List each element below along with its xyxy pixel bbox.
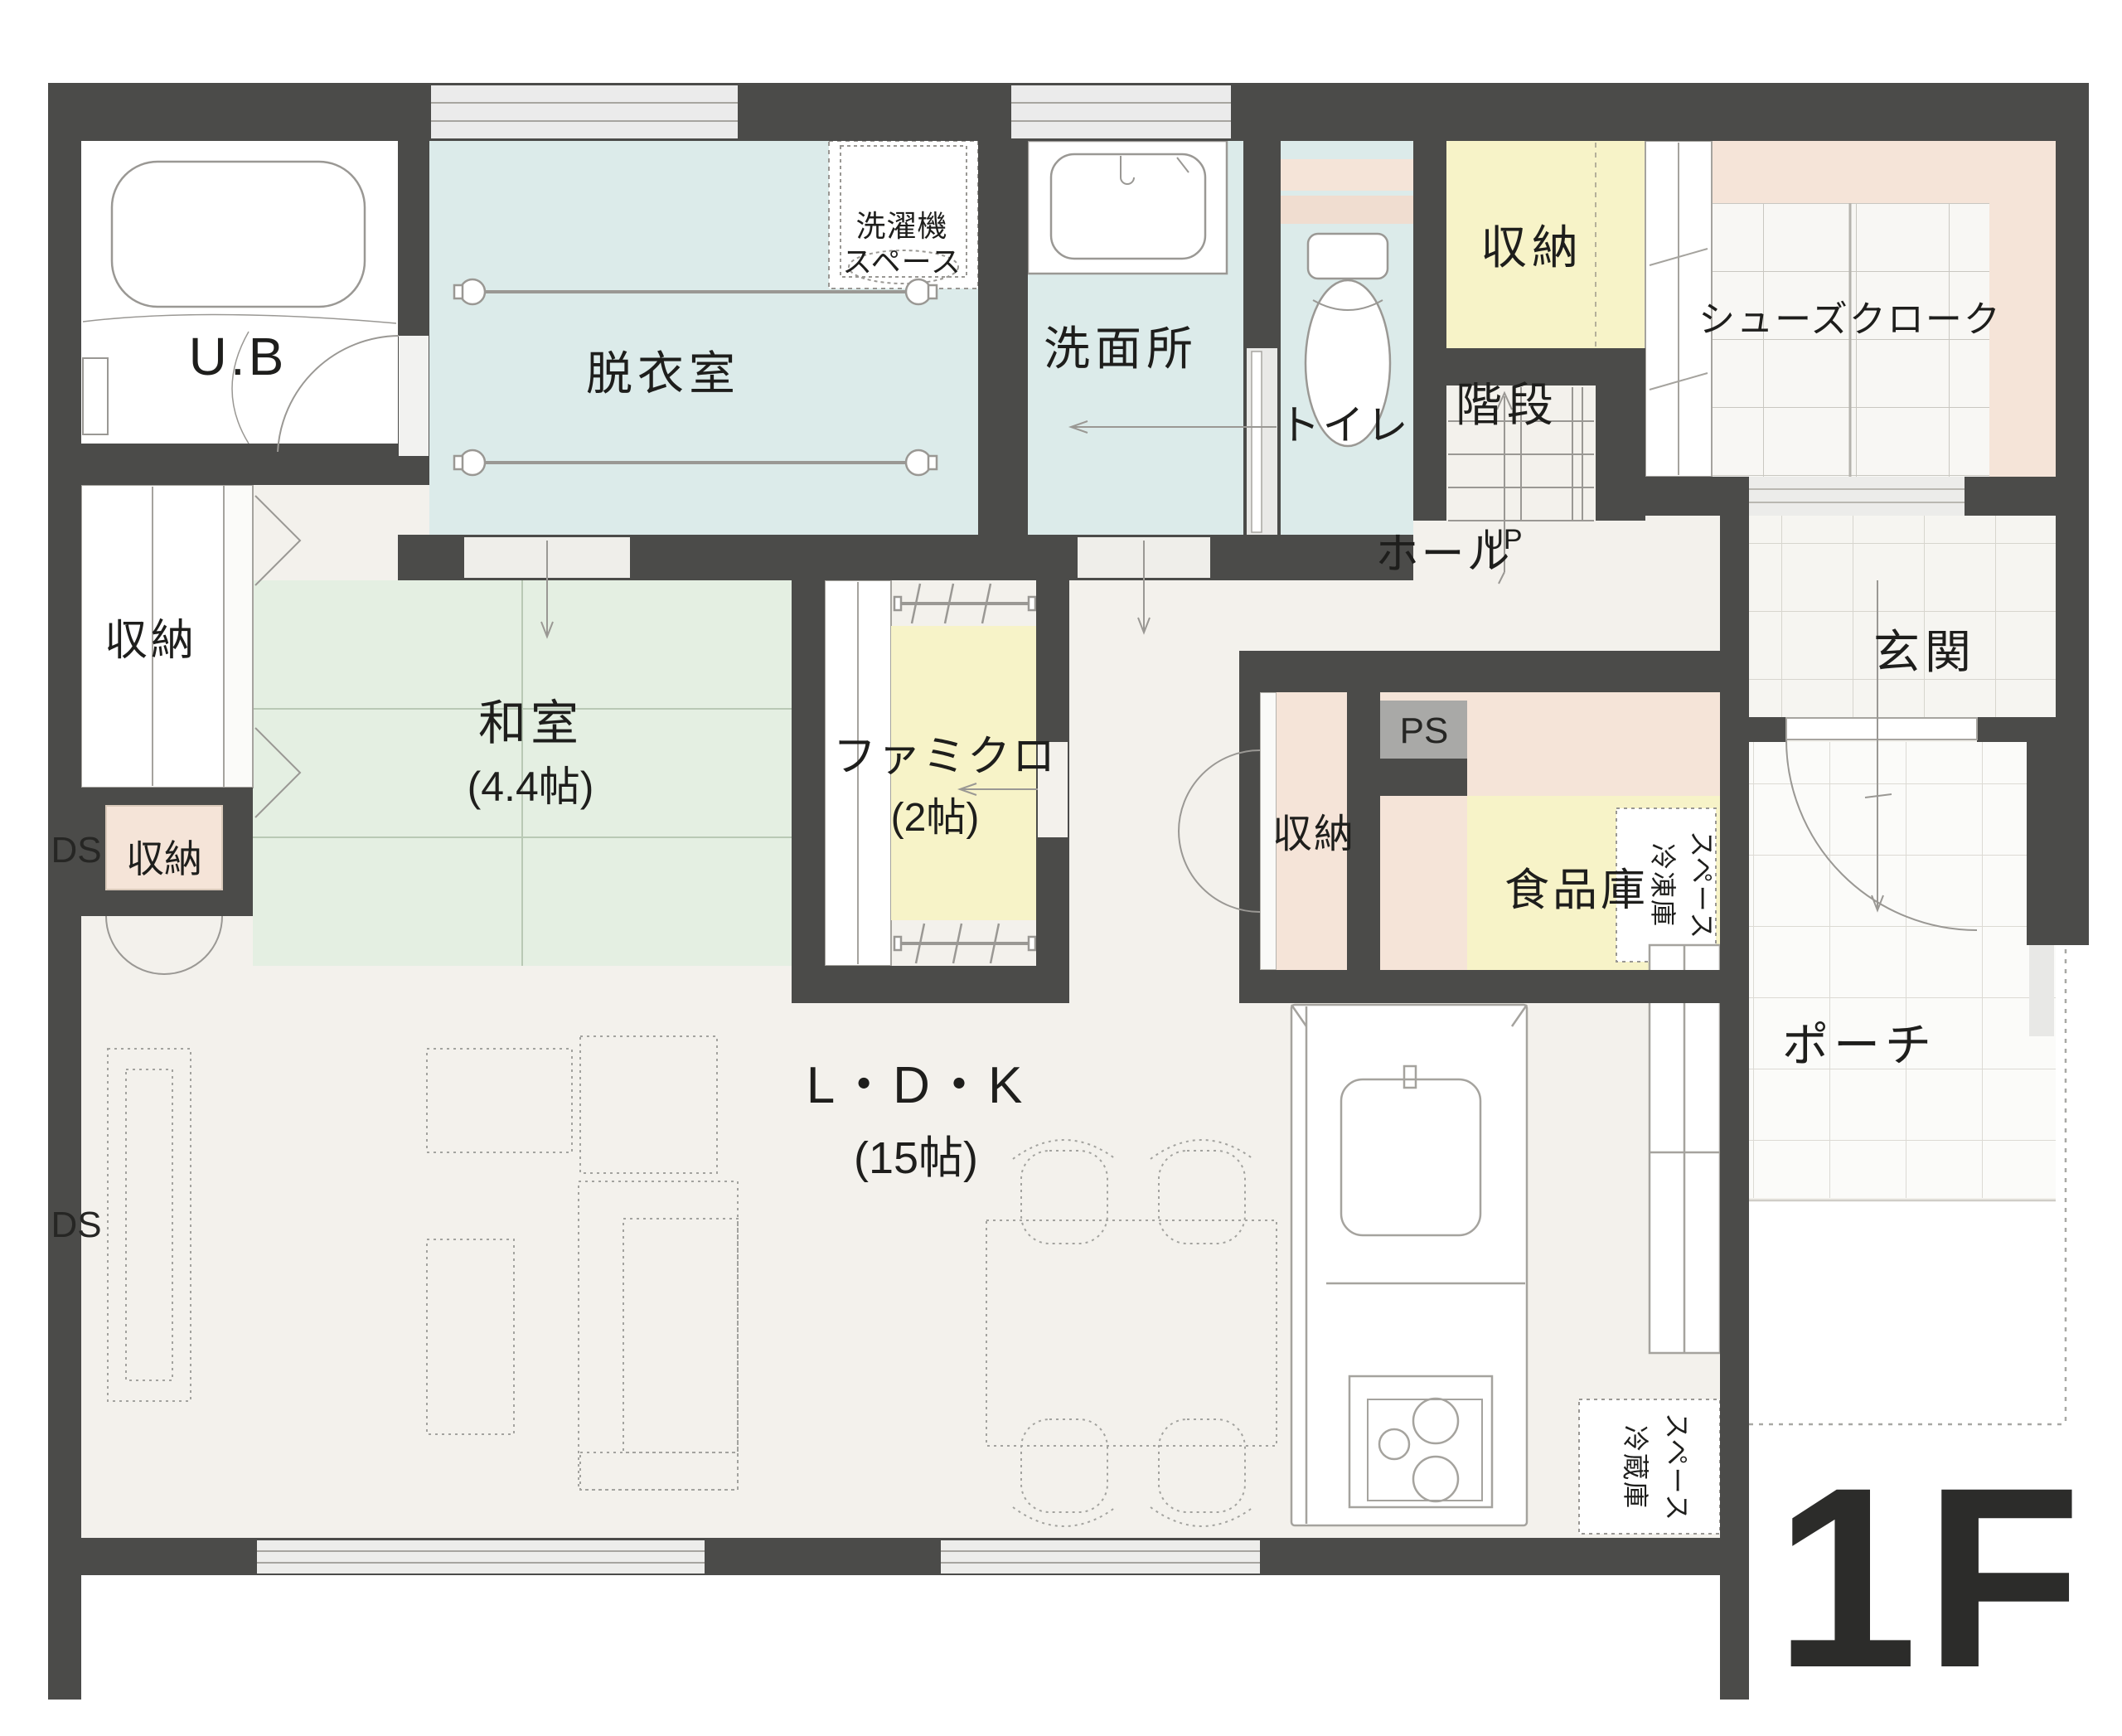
label-washroom: 洗面所: [1044, 322, 1198, 375]
label-pantry: 食品庫: [1504, 866, 1649, 915]
label-fridge-2: スペース: [1662, 1413, 1692, 1522]
storage-left-door-strip: [224, 485, 253, 788]
label-ub: U.B: [189, 327, 288, 386]
window-bottom-left: [257, 1540, 705, 1574]
entrance-step: [1749, 477, 1965, 516]
label-family-closet-size: (2帖): [891, 796, 980, 840]
toilet-shelf-band2: [1281, 196, 1413, 224]
label-storage-left: 収納: [104, 617, 197, 665]
label-freezer-1: 冷凍庫: [1648, 843, 1678, 928]
label-ps: PS: [1400, 710, 1449, 751]
label-ldk: L・D・K: [807, 1057, 1026, 1114]
toilet-tank: [1308, 234, 1388, 279]
label-floor-tag: 1F: [1775, 1433, 2088, 1721]
label-toilet: トイレ: [1279, 402, 1411, 449]
window-top-washroom: [1011, 85, 1231, 138]
label-storage-ds: 収納: [126, 837, 202, 880]
label-washer-space-1: 洗濯機: [855, 209, 947, 243]
label-hall: ホール: [1375, 531, 1512, 579]
label-entrance: 玄関: [1873, 626, 1976, 678]
label-shoes-cloak: シューズクローク: [1698, 299, 2002, 340]
label-fridge-1: 冷蔵庫: [1621, 1425, 1650, 1510]
kitchen-island: [1291, 1005, 1527, 1525]
label-family-closet: ファミクロ: [833, 733, 1057, 781]
label-storage-top-right: 収納: [1480, 221, 1583, 274]
label-washer-space-2: スペース: [842, 245, 962, 279]
label-dressing-room: 脱衣室: [586, 347, 740, 400]
kitchen-cupboard: [1650, 945, 1720, 1353]
label-freezer-2: スペース: [1687, 831, 1717, 940]
label-japanese-room-size: (4.4帖): [468, 764, 594, 810]
porch-tiles: [1749, 742, 2056, 1198]
toilet-shelf-band: [1281, 159, 1413, 191]
window-top-dressing: [431, 85, 738, 138]
label-ldk-size: (15帖): [854, 1133, 978, 1183]
pantry-left-strip: [1380, 796, 1467, 970]
window-bottom-right: [941, 1540, 1260, 1574]
label-storage-band: 収納: [1272, 812, 1355, 856]
label-porch: ポーチ: [1782, 1019, 1936, 1071]
label-stairs: 階段: [1456, 379, 1558, 431]
shoes-cloak-counter-top: [1712, 141, 1989, 203]
bathtub: [112, 162, 365, 307]
label-ds-lower: DS: [51, 1205, 101, 1245]
entrance-tiles: [1749, 516, 2056, 717]
window-right-small: [2029, 945, 2054, 1036]
floor-plan-1f: U.B 脱衣室 洗濯機 スペース 洗面所 トイレ 収納 階段 シューズクローク …: [0, 0, 2122, 1736]
label-japanese-room: 和室: [478, 696, 583, 750]
label-ds-upper: DS: [51, 830, 101, 870]
floor-plan-page: U.B 脱衣室 洗濯機 スペース 洗面所 トイレ 収納 階段 シューズクローク …: [0, 0, 2122, 1736]
